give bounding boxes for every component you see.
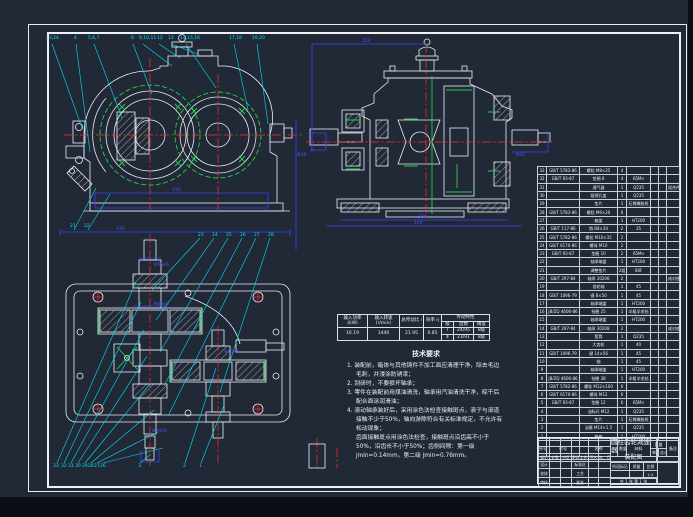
bom-cell-name: 大齿轮 xyxy=(580,341,618,349)
bom-cell-name: 垫片 xyxy=(580,415,618,423)
bom-cell-qty: 1 xyxy=(618,183,627,191)
bom-cell-no: 5 xyxy=(538,399,547,407)
bom-cell-mat: 35 xyxy=(627,225,651,233)
title-block-row: 设计 标准化 xyxy=(539,460,611,469)
bom-cell-w1 xyxy=(651,274,659,282)
bom-cell-qty: 1 xyxy=(618,332,627,340)
bom-cell-w1 xyxy=(651,341,659,349)
bom-cell-w1 xyxy=(651,216,659,224)
bom-cell-w1 xyxy=(651,291,659,299)
bom-cell-qty: 1 xyxy=(618,407,627,415)
bom-cell-w1 xyxy=(651,175,659,183)
bom-cell-w1 xyxy=(651,391,659,399)
bom-cell-w1 xyxy=(651,424,659,432)
bom-cell-mat: HT200 xyxy=(627,316,651,324)
bom-cell-mat xyxy=(627,167,651,175)
bom-row: 15 轴承端盖 1 HT200 xyxy=(538,316,680,324)
bom-cell-code: GB/T 5782-86 xyxy=(547,382,580,390)
bom-cell-rem xyxy=(667,283,680,291)
bom-cell-w1 xyxy=(651,191,659,199)
bom-cell-qty: 6 xyxy=(618,391,627,399)
bom-cell-name: 垫圈 8 xyxy=(580,175,618,183)
bom-cell-no: 11 xyxy=(538,349,547,357)
drawing-title: 圆柱齿轮减速器 装配图 xyxy=(610,438,657,462)
bom-cell-no: 26 xyxy=(538,225,547,233)
drawing-title-line2: 装配图 xyxy=(624,454,642,462)
callout-label: 12 xyxy=(157,36,163,41)
title-block-signature-grid: 设计 标准化 校核 工艺 审核 批准 xyxy=(538,459,611,487)
bom-cell-name: 轴承 30206 xyxy=(580,274,618,282)
bom-cell-name: 螺栓 M12×100 xyxy=(580,382,618,390)
bom-cell-mat: 半粗羊毛毡 xyxy=(627,308,651,316)
bom-cell-code: GB/T 117-86 xyxy=(547,225,580,233)
bom-cell-w2 xyxy=(659,191,667,199)
bom-cell-mat: 45 xyxy=(627,283,651,291)
bom-cell-mat: Q235 xyxy=(627,424,651,432)
bom-cell-rem xyxy=(667,415,680,423)
bom-cell-name: 螺栓 M10×35 xyxy=(580,233,618,241)
bom-cell-rem xyxy=(667,308,680,316)
bom-cell-w1 xyxy=(651,167,659,175)
bom-cell-w1 xyxy=(651,308,659,316)
title-block-row xyxy=(539,439,611,447)
bom-row: 8 JB/ZQ 4606-86 毡圈 38 1 半粗羊毛毡 xyxy=(538,374,680,382)
bom-cell-w1 xyxy=(651,382,659,390)
bom-cell-code: GB/T 297-84 xyxy=(547,324,580,332)
bom-cell-mat: Q235 xyxy=(627,332,651,340)
bom-cell-code xyxy=(547,332,580,340)
bom-cell-w2 xyxy=(659,332,667,340)
bom-cell-w1 xyxy=(651,316,659,324)
bom-cell-name: 垫圈 10 xyxy=(580,249,618,257)
bom-cell-w2 xyxy=(659,308,667,316)
callout-label: 31 xyxy=(68,464,74,469)
bom-row: 4 油标尺 M12 1 Q235 xyxy=(538,407,680,415)
plan-view xyxy=(57,188,337,470)
title-block-revision-grid: 标记处数 分区更改文件号 签名年、月、日 xyxy=(538,438,611,462)
bom-cell-rem xyxy=(667,391,680,399)
sheet-count: 共 1 张 第 1 张 xyxy=(610,477,657,485)
bom-cell-w1 xyxy=(651,399,659,407)
bom-cell-mat xyxy=(627,241,651,249)
bom-cell-w1 xyxy=(651,324,659,332)
bom-cell-qty: 6 xyxy=(618,399,627,407)
callout-label: 26 xyxy=(240,233,246,238)
bom-cell-rem xyxy=(667,316,680,324)
bom-cell-no: 16 xyxy=(538,308,547,316)
callout-label: 26 xyxy=(100,464,106,469)
bom-cell-w1 xyxy=(651,266,659,274)
bom-cell-mat: HT200 xyxy=(627,299,651,307)
bom-cell-no: 10 xyxy=(538,357,547,365)
bom-cell-qty: 6 xyxy=(618,382,627,390)
callout-label: 23,24 xyxy=(46,36,59,41)
bom-cell-code xyxy=(547,191,580,199)
bom-cell-w2 xyxy=(659,316,667,324)
bom-cell-no: 28 xyxy=(538,208,547,216)
bom-rows: 33 GB/T 5783-86 螺栓 M8×25 4 32 GB/T 93-87… xyxy=(538,167,680,441)
bom-cell-mat: 45 xyxy=(627,291,651,299)
callout-label: 33 xyxy=(53,464,59,469)
spec-value-eff: 0.85 xyxy=(424,328,442,341)
bom-cell-no: 20 xyxy=(538,274,547,282)
bom-cell-w2 xyxy=(659,258,667,266)
bom-cell-code: GB/T 6170-86 xyxy=(547,391,580,399)
bom-cell-code xyxy=(547,341,580,349)
bom-cell-mat: HT200 xyxy=(627,366,651,374)
bom-cell-no: 23 xyxy=(538,249,547,257)
dim-label: Φ38 xyxy=(297,153,306,158)
bom-cell-code xyxy=(547,183,580,191)
bom-cell-rem xyxy=(667,374,680,382)
drawing-title-line1: 圆柱齿轮减速器 xyxy=(611,438,656,454)
bom-cell-no: 13 xyxy=(538,332,547,340)
bom-cell-name: 垫片 xyxy=(580,200,618,208)
bom-cell-no: 30 xyxy=(538,191,547,199)
spec-value-speed: 1440 xyxy=(368,328,400,341)
bom-cell-mat xyxy=(627,274,651,282)
bom-row: 22 轴承端盖 1 HT200 xyxy=(538,258,680,266)
bom-cell-rem: 组合件 xyxy=(667,183,680,191)
bom-cell-qty: 1 xyxy=(618,316,627,324)
bom-row: 33 GB/T 5783-86 螺栓 M8×25 4 xyxy=(538,167,680,175)
bom-cell-w2 xyxy=(659,291,667,299)
technical-requirement-item: 2. 刮研时，不要损坏轴承； xyxy=(347,380,505,389)
callout-label: 9,10,11 xyxy=(139,36,156,41)
bom-row: 29 垫片 1 石棉橡胶纸 xyxy=(538,200,680,208)
bom-cell-name: 销 B8×30 xyxy=(580,225,618,233)
bom-cell-w2 xyxy=(659,283,667,291)
bom-cell-rem xyxy=(667,341,680,349)
spec-value-ratio: 21.95 xyxy=(400,328,424,341)
bom-cell-rem xyxy=(667,266,680,274)
front-view xyxy=(52,35,302,251)
bom-cell-qty: 1 xyxy=(618,191,627,199)
bom-row: 23 GB/T 93-87 垫圈 10 2 65Mn xyxy=(538,249,680,257)
bom-cell-no: 29 xyxy=(538,200,547,208)
bom-cell-no: 19 xyxy=(538,283,547,291)
bom-cell-no: 27 xyxy=(538,216,547,224)
drawing-number-cell xyxy=(657,438,680,462)
bom-cell-qty: 6 xyxy=(618,208,627,216)
bom-cell-rem xyxy=(667,175,680,183)
bom-cell-code xyxy=(547,216,580,224)
side-view xyxy=(306,39,552,226)
bom-row: 28 GB/T 5783-86 螺栓 M6×20 6 xyxy=(538,208,680,216)
dim-label: Φ40k6 xyxy=(224,350,239,355)
bom-cell-w2 xyxy=(659,175,667,183)
bom-cell-name: 轴承端盖 xyxy=(580,366,618,374)
callout-label: 29 xyxy=(82,464,88,469)
bom-cell-name: 通气器 xyxy=(580,183,618,191)
bom-cell-qty: 1 xyxy=(618,308,627,316)
bom-cell-w1 xyxy=(651,241,659,249)
bom-cell-qty: 4 xyxy=(618,175,627,183)
spec-header-power: 输入功率 (kW) xyxy=(338,315,368,328)
bom-table: 33 GB/T 5783-86 螺栓 M8×25 4 32 GB/T 93-87… xyxy=(537,166,680,457)
bom-cell-code: GB/T 5782-86 xyxy=(547,233,580,241)
cad-canvas[interactable]: 23,24 4 5,6,7 8 9,10,11 12 13 14,15,16 1… xyxy=(0,0,693,517)
bom-cell-mat: Q235 xyxy=(627,183,651,191)
bom-cell-name: 轴承 30208 xyxy=(580,324,618,332)
bom-cell-w1 xyxy=(651,208,659,216)
bom-row: 12 大齿轮 1 40 xyxy=(538,341,680,349)
bom-cell-no: 17 xyxy=(538,299,547,307)
callout-label: 4 xyxy=(74,36,77,41)
callout-label: 28 xyxy=(88,464,94,469)
bom-cell-qty: 1 xyxy=(618,341,627,349)
bom-cell-rem xyxy=(667,407,680,415)
bom-cell-qty: 2 xyxy=(618,225,627,233)
bom-cell-w1 xyxy=(651,233,659,241)
bom-cell-rem xyxy=(667,216,680,224)
callout-label: 21 xyxy=(70,224,76,229)
bom-cell-rem xyxy=(667,291,680,299)
bom-cell-w2 xyxy=(659,366,667,374)
bom-cell-qty: 2 xyxy=(618,233,627,241)
bom-cell-name: 毡圈 25 xyxy=(580,308,618,316)
spec-acc-2: 8级 xyxy=(474,334,490,341)
title-block-row: 阶段标记 质量 比例 xyxy=(611,463,658,471)
callout-label: 17,18 xyxy=(229,36,242,41)
bom-cell-no: 22 xyxy=(538,258,547,266)
bom-cell-w1 xyxy=(651,183,659,191)
organization-cell xyxy=(657,462,680,485)
bom-cell-w2 xyxy=(659,241,667,249)
bom-cell-w1 xyxy=(651,249,659,257)
bom-cell-mat: 石棉橡胶纸 xyxy=(627,200,651,208)
bom-row: 7 GB/T 5782-86 螺栓 M12×100 6 xyxy=(538,382,680,390)
callout-label: 22 xyxy=(84,224,90,229)
bom-cell-name: 螺栓 M8×25 xyxy=(580,167,618,175)
bom-cell-name: 箱盖 xyxy=(580,216,618,224)
bom-cell-name: 键 14×56 xyxy=(580,349,618,357)
callout-label: 24 xyxy=(212,233,218,238)
bom-cell-rem: 成对使用 xyxy=(667,324,680,332)
bom-cell-code xyxy=(547,366,580,374)
bom-row: 19 齿轮轴 1 45 xyxy=(538,283,680,291)
bom-row: 21 调整垫片 2组 08F xyxy=(538,266,680,274)
bom-cell-code: GB/T 297-84 xyxy=(547,274,580,282)
bom-cell-mat xyxy=(627,233,651,241)
bom-cell-rem xyxy=(667,241,680,249)
bom-cell-code: GB/T 93-87 xyxy=(547,399,580,407)
bom-cell-code xyxy=(547,415,580,423)
bom-cell-qty: 2 xyxy=(618,324,627,332)
bom-cell-name: 螺栓 M6×20 xyxy=(580,208,618,216)
bom-cell-mat: 石棉橡胶纸 xyxy=(627,415,651,423)
bom-cell-w2 xyxy=(659,357,667,365)
bom-cell-no: 8 xyxy=(538,374,547,382)
dim-label: 430 xyxy=(116,227,125,232)
bom-cell-name: 油标尺 M12 xyxy=(580,407,618,415)
title-block-row xyxy=(539,446,611,454)
bom-row: 2 油塞 M14×1.5 1 Q235 xyxy=(538,424,680,432)
bom-row: 31 通气器 1 Q235 组合件 xyxy=(538,183,680,191)
callout-label: 27 xyxy=(254,233,260,238)
callout-label: 32 xyxy=(61,464,67,469)
bom-cell-mat: 40 xyxy=(627,341,651,349)
bom-cell-no: 12 xyxy=(538,341,547,349)
bom-cell-code: GB/T 5783-86 xyxy=(547,167,580,175)
bom-cell-w1 xyxy=(651,200,659,208)
bom-cell-qty: 1 xyxy=(618,366,627,374)
bom-cell-no: 31 xyxy=(538,183,547,191)
bom-cell-qty: 2 xyxy=(618,241,627,249)
bom-cell-code: JB/ZQ 4606-86 xyxy=(547,308,580,316)
technical-requirements: 技术要求 1. 装配前，箱体与其他铸件不加工面应清理干净，除去毛边毛刺，并浸涂防… xyxy=(347,349,505,461)
bom-cell-name: 调整垫片 xyxy=(580,266,618,274)
dim-label: Φ55k6 xyxy=(154,263,169,268)
bom-cell-qty: 2组 xyxy=(618,266,627,274)
bom-cell-name: 轴 xyxy=(580,357,618,365)
spec-teeth-2: 23/91 xyxy=(454,334,474,341)
bom-cell-qty: 1 xyxy=(618,299,627,307)
window-edge-bottom xyxy=(0,497,693,517)
callout-label: 2 xyxy=(183,464,186,469)
bom-cell-w1 xyxy=(651,407,659,415)
bom-cell-no: 21 xyxy=(538,266,547,274)
callout-label: 8 xyxy=(131,36,134,41)
bom-cell-code: GB/T 6170-86 xyxy=(547,241,580,249)
bom-cell-rem xyxy=(667,299,680,307)
bom-cell-code xyxy=(547,200,580,208)
bom-cell-qty: 1 xyxy=(618,415,627,423)
callout-label: 25 xyxy=(226,233,232,238)
bom-cell-qty: 2 xyxy=(618,274,627,282)
callout-label: 23 xyxy=(198,233,204,238)
bom-row: 18 GB/T 1096-79 键 8×50 1 45 xyxy=(538,291,680,299)
bom-cell-qty: 1 xyxy=(618,258,627,266)
callout-label: 28 xyxy=(268,233,274,238)
bom-cell-mat xyxy=(627,208,651,216)
bom-cell-mat: HT200 xyxy=(627,216,651,224)
bom-cell-name: 键 8×50 xyxy=(580,291,618,299)
bom-cell-code xyxy=(547,266,580,274)
technical-requirements-title: 技术要求 xyxy=(347,349,505,359)
bom-cell-name: 螺母 M10 xyxy=(580,241,618,249)
bom-cell-rem xyxy=(667,382,680,390)
bom-cell-w2 xyxy=(659,208,667,216)
bom-cell-rem xyxy=(667,424,680,432)
bom-cell-w2 xyxy=(659,216,667,224)
bom-cell-qty: 1 xyxy=(618,283,627,291)
title-block-row: 校核 工艺 xyxy=(539,469,611,478)
bom-cell-qty: 1 xyxy=(618,291,627,299)
bom-cell-code: GB/T 5783-86 xyxy=(547,208,580,216)
bom-cell-qty: 1 xyxy=(618,200,627,208)
bom-row: 25 GB/T 5782-86 螺栓 M10×35 2 xyxy=(538,233,680,241)
bom-row: 16 JB/ZQ 4606-86 毡圈 25 1 半粗羊毛毡 xyxy=(538,308,680,316)
callout-label: 13 xyxy=(168,36,174,41)
bom-cell-rem xyxy=(667,191,680,199)
bom-cell-w2 xyxy=(659,407,667,415)
technical-requirement-item: 1. 装配前，箱体与其他铸件不加工面应清理干净，除去毛边毛刺，并浸涂防锈漆； xyxy=(347,362,505,380)
spec-header-ratio: 总传动比 i xyxy=(400,315,424,328)
bom-cell-w2 xyxy=(659,341,667,349)
bom-cell-w2 xyxy=(659,183,667,191)
bom-cell-code: GB/T 1096-79 xyxy=(547,291,580,299)
bom-cell-no: 6 xyxy=(538,391,547,399)
bom-cell-rem xyxy=(667,399,680,407)
bom-cell-qty: 1 xyxy=(618,216,627,224)
bom-cell-mat: 45 xyxy=(627,349,651,357)
bom-cell-mat: 65Mn xyxy=(627,399,651,407)
bom-row: 3 垫片 1 石棉橡胶纸 xyxy=(538,415,680,423)
bom-cell-rem xyxy=(667,167,680,175)
bom-cell-mat: Q235 xyxy=(627,407,651,415)
bom-cell-name: 毡圈 38 xyxy=(580,374,618,382)
title-block: 标记处数 分区更改文件号 签名年、月、日 设计 标准化 校核 工艺 审核 批准 xyxy=(537,437,679,484)
bom-cell-w2 xyxy=(659,200,667,208)
bom-row: 13 套筒 1 Q235 xyxy=(538,332,680,340)
bom-row: 24 GB/T 6170-86 螺母 M10 2 xyxy=(538,241,680,249)
bom-cell-mat: 45 xyxy=(627,357,651,365)
bom-cell-w1 xyxy=(651,225,659,233)
bom-cell-qty: 2 xyxy=(618,249,627,257)
bom-cell-no: 3 xyxy=(538,415,547,423)
bom-cell-mat: 65Mn xyxy=(627,175,651,183)
bom-cell-w1 xyxy=(651,258,659,266)
bom-cell-qty: 1 xyxy=(618,357,627,365)
bom-cell-w1 xyxy=(651,374,659,382)
bom-cell-mat xyxy=(627,391,651,399)
bom-cell-rem xyxy=(667,208,680,216)
dim-label: 430 xyxy=(172,188,181,193)
bom-cell-w1 xyxy=(651,415,659,423)
bom-row: 11 GB/T 1096-79 键 14×56 1 45 xyxy=(538,349,680,357)
spec-header-eff: 效率 η xyxy=(424,315,442,328)
bom-row: 14 GB/T 297-84 轴承 30208 2 成对使用 xyxy=(538,324,680,332)
spec-table: 输入功率 (kW) 输入转速 (r/min) 总传动比 i 效率 η 传动特性 … xyxy=(337,314,490,341)
bom-cell-no: 14 xyxy=(538,324,547,332)
bom-row: 17 轴承端盖 1 HT200 xyxy=(538,299,680,307)
bom-cell-no: 9 xyxy=(538,366,547,374)
spec-stage-2: Ⅱ xyxy=(442,334,454,341)
bom-cell-code xyxy=(547,407,580,415)
bom-cell-mat: 65Mn xyxy=(627,249,651,257)
bom-row: 27 箱盖 1 HT200 xyxy=(538,216,680,224)
spec-header-speed: 输入转速 (r/min) xyxy=(368,315,400,328)
bom-row: 9 轴承端盖 1 HT200 xyxy=(538,366,680,374)
bom-cell-w2 xyxy=(659,391,667,399)
bom-cell-w2 xyxy=(659,167,667,175)
bom-cell-w1 xyxy=(651,366,659,374)
bom-cell-code xyxy=(547,424,580,432)
bom-row: 30 窥视孔盖 1 Q235 xyxy=(538,191,680,199)
callout-label: 27 xyxy=(94,464,100,469)
bom-cell-w2 xyxy=(659,274,667,282)
bom-cell-w1 xyxy=(651,349,659,357)
bom-cell-w2 xyxy=(659,249,667,257)
bom-cell-code: GB/T 1096-79 xyxy=(547,349,580,357)
bom-cell-rem xyxy=(667,349,680,357)
bom-row: 26 GB/T 117-86 销 B8×30 2 35 xyxy=(538,225,680,233)
bom-cell-no: 4 xyxy=(538,407,547,415)
bom-cell-no: 33 xyxy=(538,167,547,175)
bom-row: 5 GB/T 93-87 垫圈 12 6 65Mn xyxy=(538,399,680,407)
bom-cell-name: 轴承端盖 xyxy=(580,258,618,266)
callout-label: 19,20 xyxy=(252,36,265,41)
bom-cell-qty: 1 xyxy=(618,374,627,382)
bom-cell-no: 18 xyxy=(538,291,547,299)
callout-label: 1 xyxy=(199,464,202,469)
bom-row: 10 轴 1 45 xyxy=(538,357,680,365)
bom-cell-code xyxy=(547,283,580,291)
dim-label: 254 xyxy=(362,39,371,44)
bom-cell-name: 垫圈 12 xyxy=(580,399,618,407)
bom-cell-code: GB/T 93-87 xyxy=(547,249,580,257)
